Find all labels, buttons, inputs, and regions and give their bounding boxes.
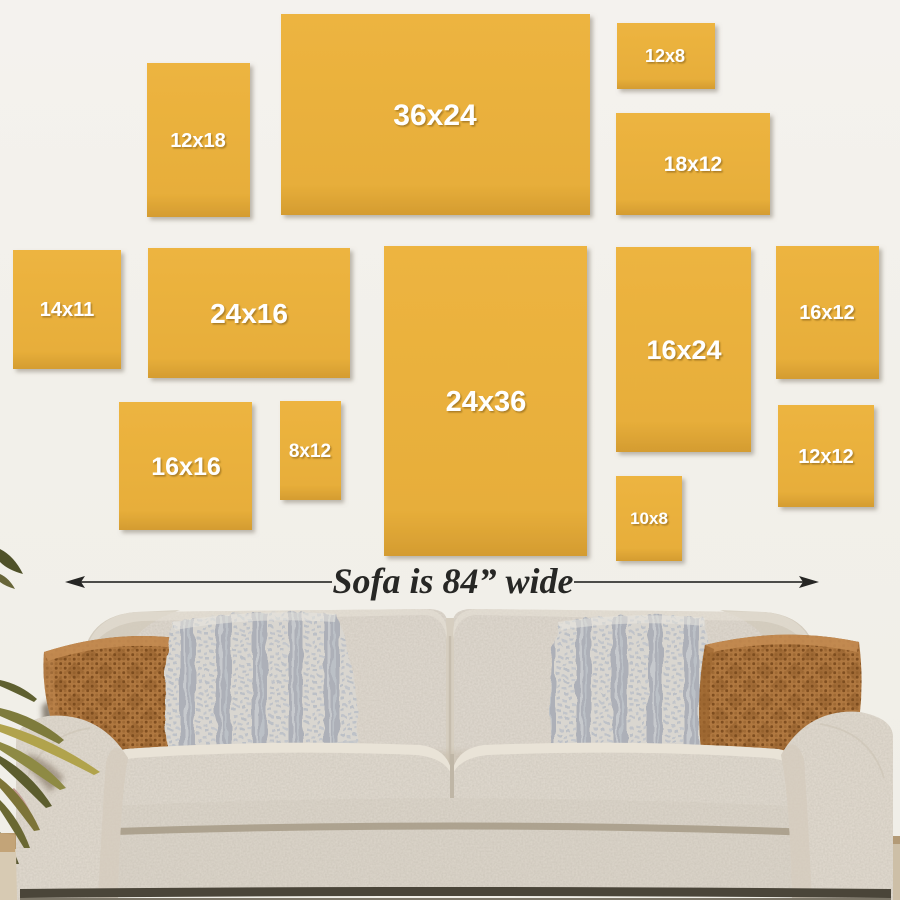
svg-text:24x36: 24x36	[446, 386, 527, 418]
svg-text:16x16: 16x16	[151, 453, 221, 481]
svg-text:Sofa is 84” wide: Sofa is 84” wide	[332, 561, 573, 601]
svg-text:14x11: 14x11	[40, 299, 95, 321]
svg-text:12x8: 12x8	[645, 46, 685, 66]
svg-text:8x12: 8x12	[289, 441, 331, 462]
svg-text:18x12: 18x12	[664, 153, 722, 176]
svg-text:16x24: 16x24	[646, 335, 721, 365]
svg-text:36x24: 36x24	[393, 99, 477, 132]
svg-text:12x12: 12x12	[798, 446, 854, 468]
svg-text:24x16: 24x16	[210, 298, 288, 329]
svg-text:16x12: 16x12	[799, 302, 855, 324]
svg-text:12x18: 12x18	[170, 130, 226, 152]
svg-text:10x8: 10x8	[630, 509, 668, 528]
